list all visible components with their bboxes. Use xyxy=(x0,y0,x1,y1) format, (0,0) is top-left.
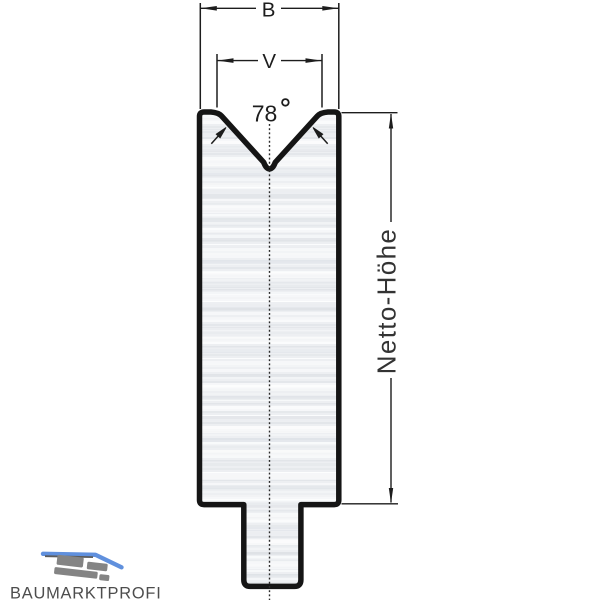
svg-text:BAUMARKTPROFI: BAUMARKTPROFI xyxy=(10,584,162,600)
svg-text:78: 78 xyxy=(252,100,278,126)
svg-text:B: B xyxy=(262,0,276,22)
svg-text:V: V xyxy=(262,50,276,73)
svg-text:Netto-Höhe: Netto-Höhe xyxy=(372,228,402,374)
